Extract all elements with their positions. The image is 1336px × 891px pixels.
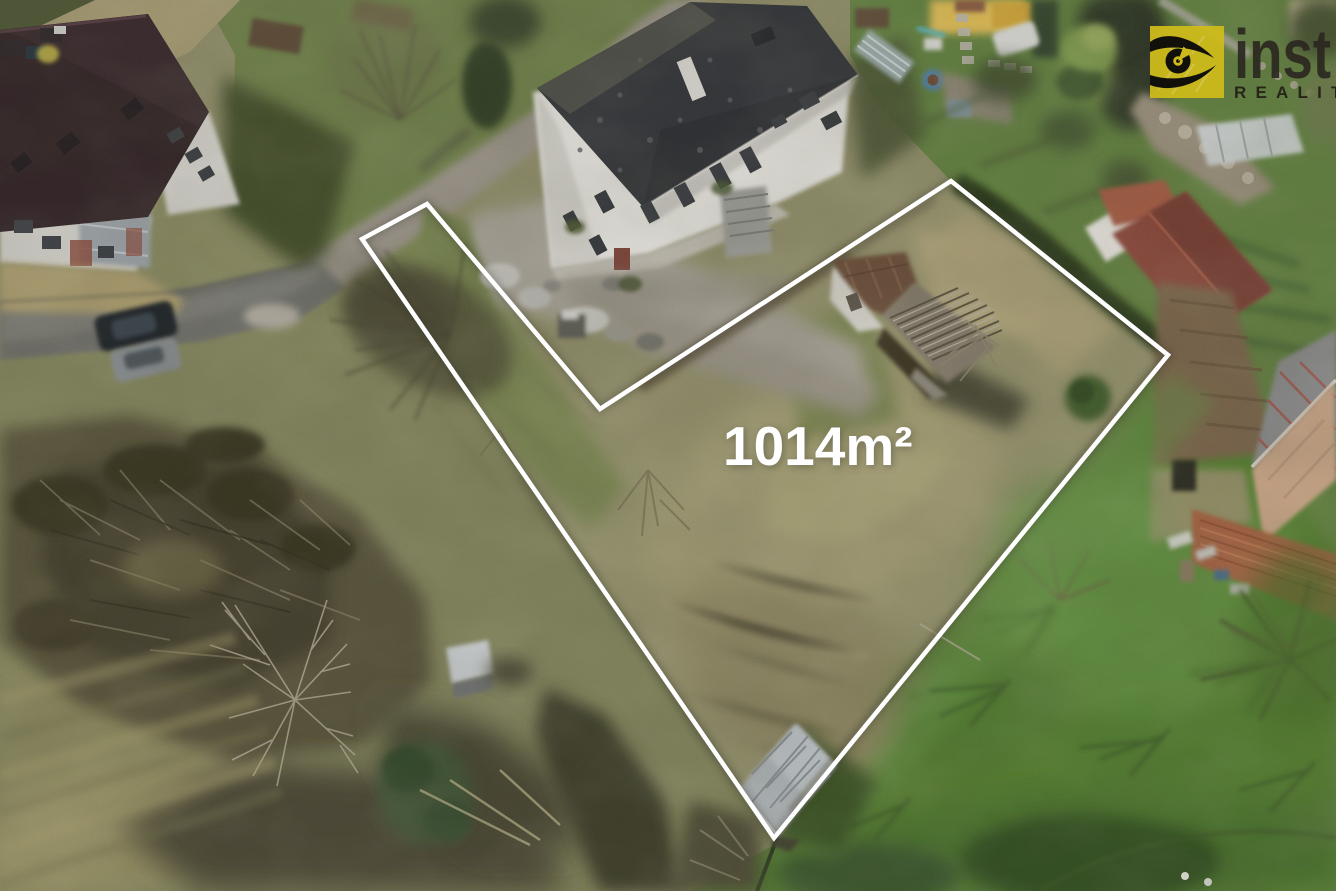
svg-text:inst: inst xyxy=(1234,16,1331,94)
svg-text:REALIT: REALIT xyxy=(1234,83,1336,102)
svg-text:1014m²: 1014m² xyxy=(723,415,913,477)
